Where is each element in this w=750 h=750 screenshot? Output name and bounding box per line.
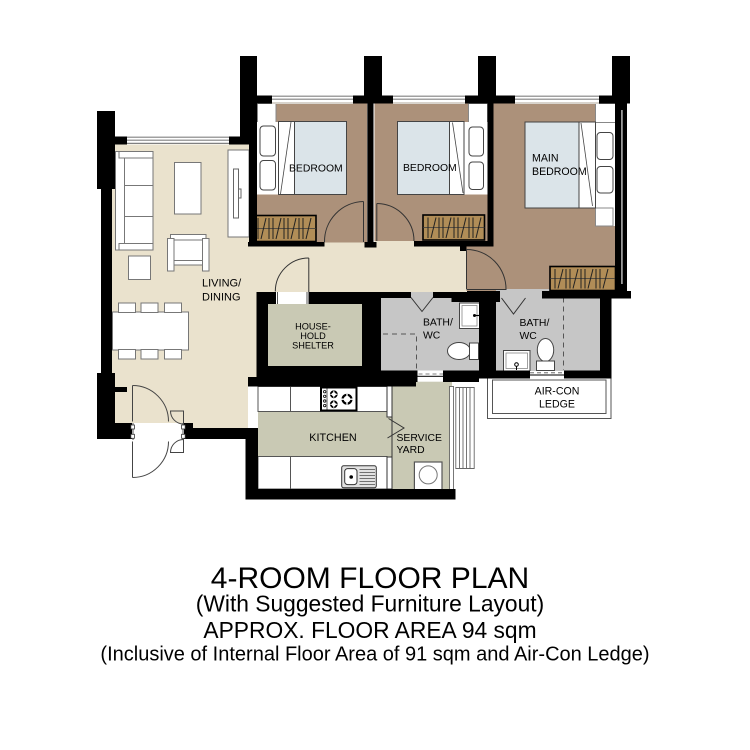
svg-text:WC: WC <box>423 331 441 342</box>
svg-text:SERVICE: SERVICE <box>397 433 442 444</box>
svg-text:HOUSE-: HOUSE- <box>295 322 331 332</box>
svg-text:APPROX. FLOOR AREA 94 sqm: APPROX. FLOOR AREA 94 sqm <box>203 617 536 643</box>
svg-text:(With Suggested Furniture Layo: (With Suggested Furniture Layout) <box>196 591 544 617</box>
svg-text:BEDROOM: BEDROOM <box>403 163 457 174</box>
svg-text:BEDROOM: BEDROOM <box>532 166 587 178</box>
svg-text:(Inclusive of Internal Floor A: (Inclusive of Internal Floor Area of 91 … <box>100 644 649 666</box>
svg-text:DINING: DINING <box>202 292 241 304</box>
svg-text:MAIN: MAIN <box>532 153 558 165</box>
svg-text:LIVING/: LIVING/ <box>202 278 242 290</box>
svg-text:HOLD: HOLD <box>300 331 326 341</box>
svg-text:AIR-CON: AIR-CON <box>535 386 580 398</box>
svg-text:SHELTER: SHELTER <box>292 341 334 351</box>
svg-text:BATH/: BATH/ <box>423 318 453 329</box>
svg-text:WC: WC <box>520 331 538 342</box>
svg-text:LEDGE: LEDGE <box>539 399 575 411</box>
svg-text:BATH/: BATH/ <box>520 318 550 329</box>
svg-text:BEDROOM: BEDROOM <box>289 164 343 175</box>
svg-text:KITCHEN: KITCHEN <box>309 432 356 444</box>
svg-text:YARD: YARD <box>397 445 425 456</box>
